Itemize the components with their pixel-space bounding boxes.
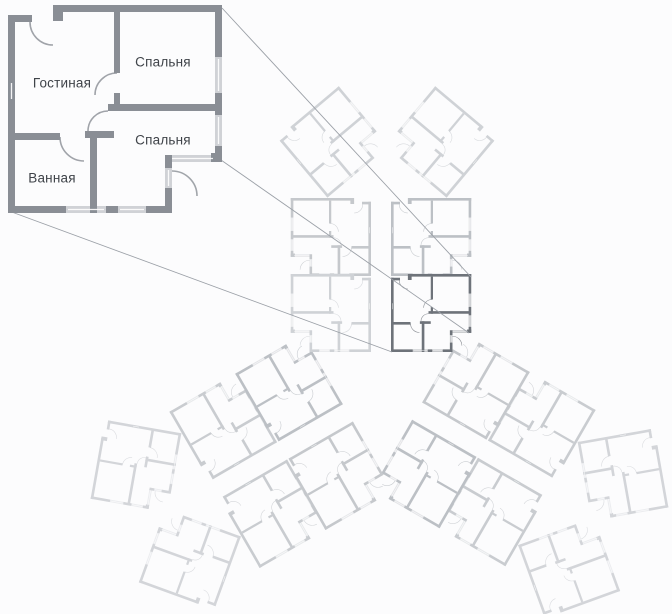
room-label-bathroom: Ванная [28, 171, 75, 186]
floor-plan-canvas: Гостиная Спальня Спальня Ванная [0, 0, 672, 614]
floor-plan-diagram: Гостиная Спальня Спальня Ванная [0, 0, 672, 614]
room-label-bedroom-2: Спальня [135, 133, 191, 148]
room-label-living-room: Гостиная [33, 76, 91, 91]
room-label-bedroom-1: Спальня [135, 55, 191, 70]
